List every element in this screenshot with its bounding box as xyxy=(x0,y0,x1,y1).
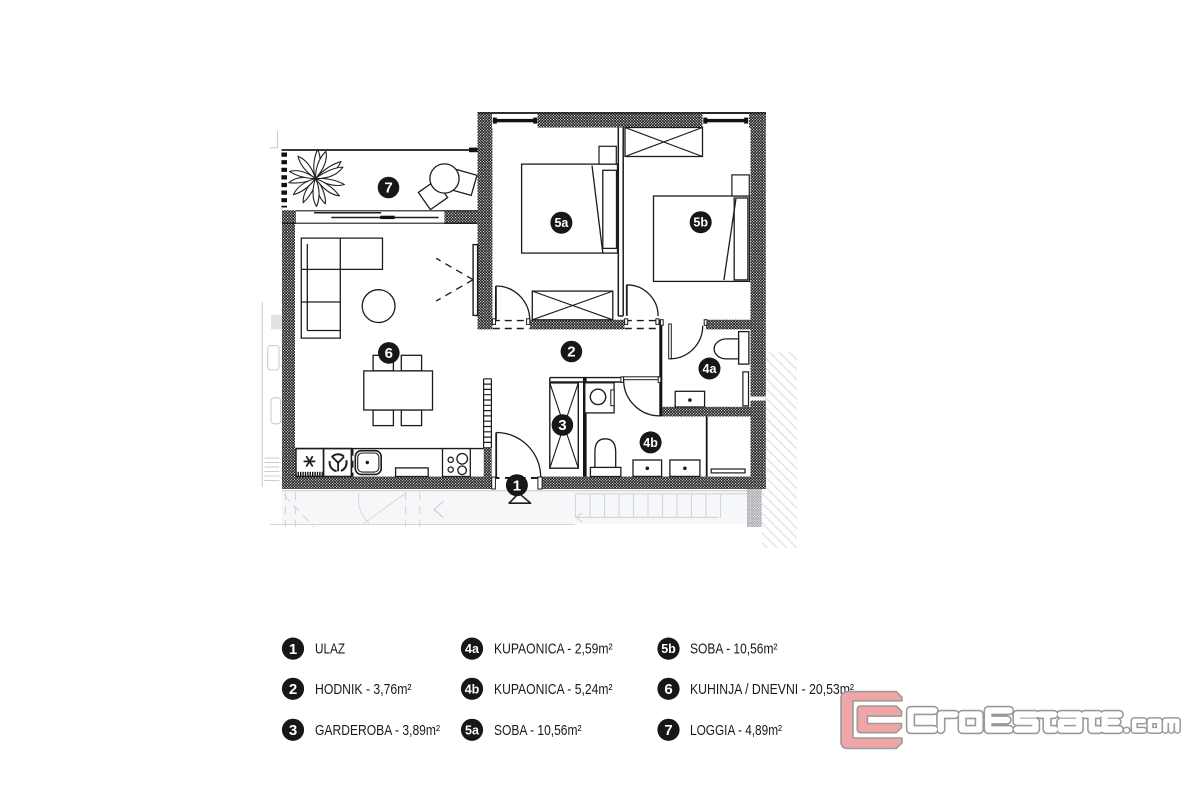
svg-text:6: 6 xyxy=(664,681,672,698)
svg-text:4b: 4b xyxy=(643,436,658,450)
svg-text:GARDEROBA - 3,89m²: GARDEROBA - 3,89m² xyxy=(315,723,440,739)
svg-text:5b: 5b xyxy=(693,216,708,230)
svg-text:1: 1 xyxy=(513,477,521,494)
svg-text:ULAZ: ULAZ xyxy=(315,642,345,658)
svg-text:1: 1 xyxy=(289,641,297,658)
svg-text:3: 3 xyxy=(289,722,297,739)
svg-text:HODNIK - 3,76m²: HODNIK - 3,76m² xyxy=(315,682,412,698)
svg-text:5a: 5a xyxy=(554,216,569,230)
svg-text:7: 7 xyxy=(664,722,672,739)
svg-text:7: 7 xyxy=(384,180,392,197)
svg-text:3: 3 xyxy=(558,417,566,434)
svg-text:LOGGIA - 4,89m²: LOGGIA - 4,89m² xyxy=(690,723,782,739)
svg-text:4a: 4a xyxy=(465,642,480,656)
svg-text:KUPAONICA - 5,24m²: KUPAONICA - 5,24m² xyxy=(494,682,613,698)
svg-text:SOBA - 10,56m²: SOBA - 10,56m² xyxy=(690,642,778,658)
svg-text:KUPAONICA - 2,59m²: KUPAONICA - 2,59m² xyxy=(494,642,613,658)
svg-text:5b: 5b xyxy=(661,642,676,656)
svg-text:2: 2 xyxy=(289,681,297,698)
svg-text:6: 6 xyxy=(385,345,393,362)
svg-text:SOBA - 10,56m²: SOBA - 10,56m² xyxy=(494,723,582,739)
svg-text:KUHINJA / DNEVNI - 20,53m²: KUHINJA / DNEVNI - 20,53m² xyxy=(690,682,854,698)
svg-text:4a: 4a xyxy=(703,362,718,376)
svg-text:2: 2 xyxy=(567,344,575,361)
svg-text:5a: 5a xyxy=(465,723,480,737)
svg-text:4b: 4b xyxy=(465,682,480,696)
